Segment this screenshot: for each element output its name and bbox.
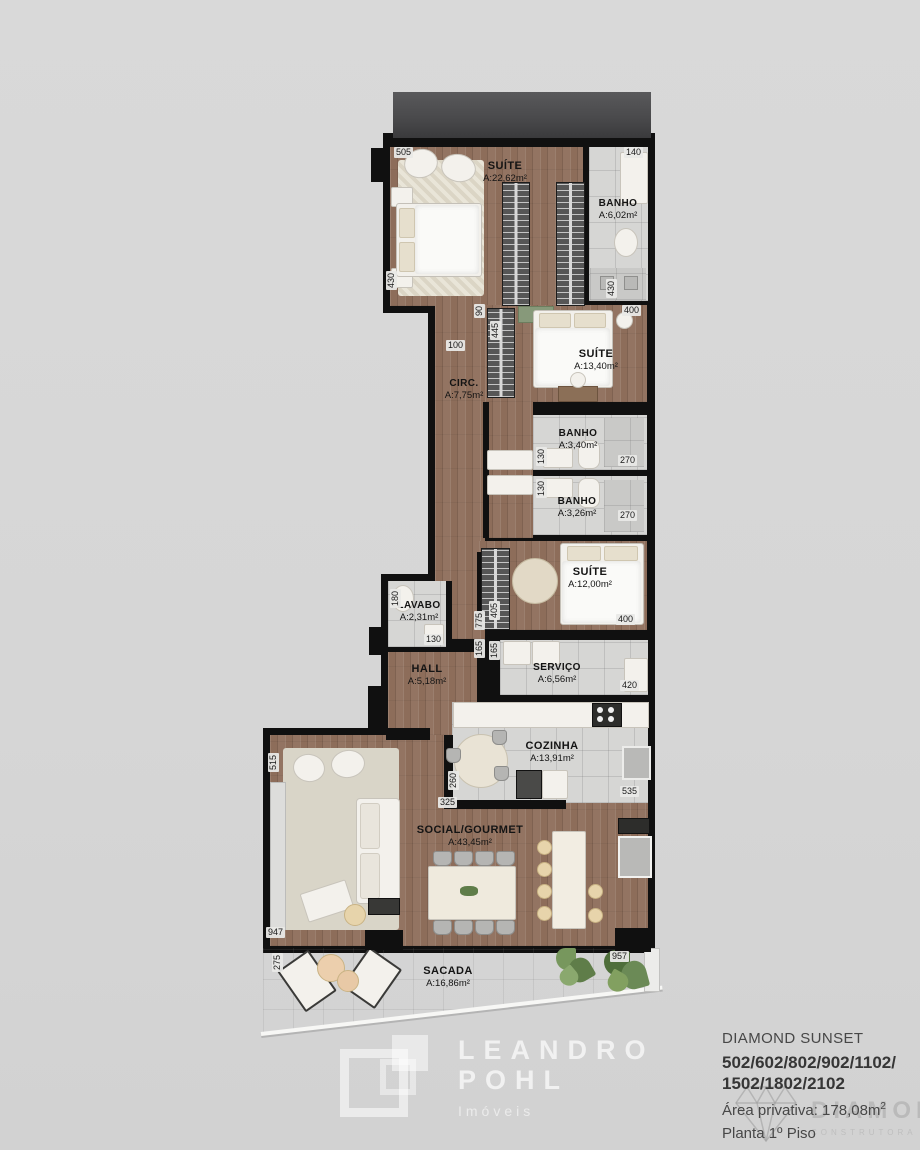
realtor-logo-icon: [340, 1035, 432, 1127]
cabinet: [487, 450, 533, 470]
room-label-banho3: BANHOA:3,26m²: [558, 496, 597, 519]
project-name: DIAMOND SUNSET: [722, 1030, 896, 1047]
vanity-banho3: [543, 478, 573, 498]
wall-stub: [369, 627, 383, 655]
dining-chair: [475, 920, 494, 935]
unit-numbers-line2: 1502/1802/2102: [722, 1073, 896, 1094]
room-label-social: SOCIAL/GOURMETA:43,45m²: [417, 824, 523, 848]
gourmet-cabinet: [618, 818, 650, 834]
dimension-corridor-405: 405: [489, 601, 500, 620]
room-label-servico: SERVIÇOA:6,56m²: [533, 662, 581, 685]
gourmet-island: [552, 831, 586, 929]
dining-chair: [496, 920, 515, 935]
side-table: [337, 970, 359, 992]
sideboard: [270, 782, 286, 930]
dimension-lavabo-bottom: 130: [424, 634, 443, 645]
burner: [597, 707, 603, 713]
roof-slab: [393, 92, 651, 138]
dimension-circ-door: 90: [474, 304, 485, 318]
room-label-banho2: BANHOA:3,40m²: [559, 428, 598, 451]
dimension-banho3-right: 270: [618, 510, 637, 521]
dimension-social-left: 515: [268, 753, 279, 772]
dimension-hall-165a: 165: [474, 639, 485, 658]
dining-chair: [496, 851, 515, 866]
dimension-cozinha-table: 260: [448, 771, 459, 790]
vanity-banho2: [543, 448, 573, 468]
stool: [537, 840, 552, 855]
stool: [537, 884, 552, 899]
wardrobe-suite1: [502, 182, 530, 306]
chair: [494, 766, 509, 781]
wall-stub: [615, 928, 651, 952]
stool: [537, 862, 552, 877]
shower-banho3: [604, 480, 644, 532]
dimension-suite3-right: 400: [616, 614, 635, 625]
dimension-cozinha-bottom: 325: [438, 797, 457, 808]
burner: [608, 716, 614, 722]
dining-chair: [433, 851, 452, 866]
room-label-cozinha: COZINHAA:13,91m²: [526, 740, 579, 764]
room-label-hall: HALLA:5,18m²: [408, 663, 447, 687]
dimension-sacada-right: 957: [610, 951, 629, 962]
realtor-name-line2: POHL: [458, 1065, 655, 1095]
wall-stub: [365, 930, 403, 950]
cabinet: [487, 475, 533, 495]
dimension-hall-165b: 165: [489, 641, 500, 660]
room-label-suite1: SUÍTEA:22,62m²: [483, 160, 527, 184]
dining-chair: [433, 920, 452, 935]
dimension-circ-left: 100: [446, 340, 465, 351]
wardrobe-suite1: [556, 182, 585, 306]
sofa: [356, 798, 400, 904]
dimension-social-bottom: 947: [266, 927, 285, 938]
realtor-tagline: Imóveis: [458, 1103, 655, 1119]
wall-cozinha-social: [446, 800, 566, 809]
burner: [597, 716, 603, 722]
dimension-banho1-right: 430: [606, 279, 617, 298]
wall-lavabo-corridor: [446, 581, 452, 647]
table-centerpiece: [460, 886, 478, 896]
wall-corridor-banhos: [483, 402, 489, 538]
stool: [588, 908, 603, 923]
desk-chair: [570, 372, 586, 388]
floorplan-image: SUÍTEA:22,62m² BANHOA:6,02m² SUÍTEA:13,4…: [0, 0, 920, 1150]
wall-stub: [368, 686, 383, 738]
stool: [588, 884, 603, 899]
dimension-cozinha-right: 535: [620, 786, 639, 797]
room-label-suite3: SUÍTEA:12,00m²: [568, 566, 612, 590]
dimension-sacada-left: 275: [272, 953, 283, 972]
room-label-banho1: BANHOA:6,02m²: [599, 198, 638, 221]
kitchen-cabinet: [516, 770, 542, 799]
fridge: [622, 746, 651, 780]
wall-hall-social: [386, 728, 430, 740]
dining-chair: [475, 851, 494, 866]
closet-strip-floor: [485, 402, 533, 538]
dining-chair: [454, 920, 473, 935]
bed-suite1: [396, 203, 482, 277]
washer: [503, 641, 531, 665]
dimension-banho3-left: 130: [536, 479, 547, 498]
realtor-name-line1: LEANDRO: [458, 1035, 655, 1065]
room-label-suite2: SUÍTEA:13,40m²: [574, 348, 618, 372]
dimension-lavabo-left: 180: [390, 589, 401, 608]
dimension-corridor-775: 775: [474, 611, 485, 630]
desk: [558, 386, 598, 402]
kitchen-sink-unit: [542, 770, 568, 799]
room-label-circ: CIRC.A:7,75m²: [445, 378, 484, 401]
tv-unit: [368, 898, 400, 915]
private-area: Área privativa: 178,08m2: [722, 1097, 896, 1121]
room-label-sacada: SACADAA:16,86m²: [423, 965, 472, 989]
vanity-banho1: [620, 152, 648, 204]
gourmet-fridge: [618, 836, 652, 878]
floor-name: Planta 1º Piso: [722, 1124, 896, 1144]
pouf: [344, 904, 366, 926]
dimension-suite2-wardrobe: 445: [490, 321, 501, 340]
dimension-banho2-left: 130: [536, 447, 547, 466]
chair: [492, 730, 507, 745]
realtor-logo: LEANDRO POHL Imóveis: [340, 1035, 655, 1127]
dimension-servico-right: 420: [620, 680, 639, 691]
room-label-lavabo: LAVABOA:2,31m²: [397, 600, 440, 623]
dimension-suite1-top: 505: [394, 147, 413, 158]
plan-info: DIAMOND SUNSET 502/602/802/902/1102/ 150…: [722, 1030, 896, 1144]
stool: [537, 906, 552, 921]
wall-stub: [371, 148, 385, 182]
chair: [446, 748, 461, 763]
burner: [608, 707, 614, 713]
dining-chair: [454, 851, 473, 866]
dimension-banho1-top: 140: [624, 147, 643, 158]
dimension-suite1-left: 430: [386, 271, 397, 290]
toilet-banho1: [614, 228, 638, 257]
shower-drain: [624, 276, 638, 290]
cooktop: [592, 703, 622, 727]
unit-numbers-line1: 502/602/802/902/1102/: [722, 1052, 896, 1073]
pouf-suite3: [512, 558, 558, 604]
dimension-suite2-right: 400: [622, 305, 641, 316]
dimension-banho2-right: 270: [618, 455, 637, 466]
